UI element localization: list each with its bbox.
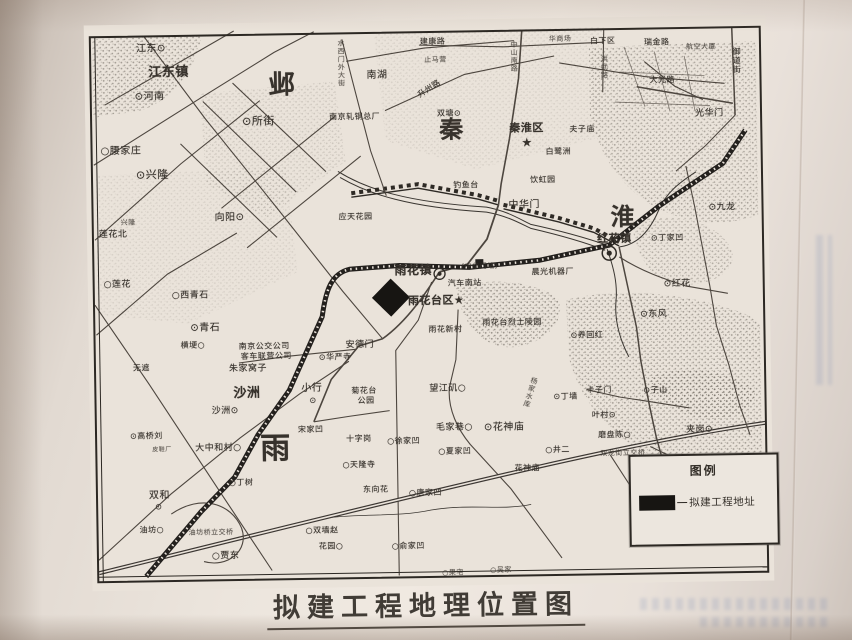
map-label: ○贾东 <box>212 552 239 561</box>
map-label: 瑞金路 <box>644 38 670 46</box>
map-label: ○吴家 <box>490 567 512 574</box>
map-label: 航空大厦 <box>686 43 716 50</box>
map-label: ○井二 <box>545 446 570 454</box>
map-label: ○天隆寺 <box>342 461 375 470</box>
map-label: ○果宅 <box>442 569 464 576</box>
map-label: 大中和村○ <box>195 444 241 454</box>
map-label: 沙洲 <box>233 387 260 400</box>
map-label: 磨盘陈○ <box>598 431 631 440</box>
map-label: 雨花台区★ <box>408 294 465 306</box>
paper-edge <box>789 0 805 640</box>
map-label: 雨花镇 <box>394 264 432 277</box>
legend-dash <box>677 502 687 504</box>
legend-item: 拟建工程地址 <box>639 494 769 511</box>
map-label: 兴隆 <box>121 220 136 227</box>
map-label: ⊙九龙 <box>708 203 735 212</box>
map-label: ○丁树 <box>229 479 254 487</box>
map-label: 大光路 <box>649 76 675 84</box>
map-label: 汽车南站 <box>448 279 482 288</box>
map-label: ○双墙赵 <box>306 526 339 535</box>
map-label: ⊙丁家凹 <box>651 234 684 243</box>
map-label: 望江矶○ <box>429 384 466 394</box>
map-label: 升州路 <box>417 79 443 100</box>
map-caption: 拟建工程地理位置图 <box>0 584 852 628</box>
map-label: 晨光机器厂 <box>531 268 574 277</box>
map-label: 钓鱼台 <box>453 181 479 189</box>
map-label: 水西门外大街 <box>337 39 345 87</box>
map-label: ⊙东风 <box>640 310 667 319</box>
map-label: 饮虹园 <box>530 176 556 184</box>
page-title: 拟建工程地理位置图 <box>267 582 586 630</box>
map-label: 双和 <box>149 491 170 501</box>
map-label: 秦 <box>439 117 464 141</box>
map-label: ⊙高桥刘 <box>130 432 163 441</box>
map-label: 夫子庙 <box>569 125 595 133</box>
map-label: 白下区 <box>590 37 616 45</box>
map-label: 客车联营公司 <box>241 352 292 361</box>
map-label: 雨花新村 <box>428 325 462 334</box>
map-label: 雨花台烈士陵园 <box>482 318 542 327</box>
map-label: ⊙花神庙 <box>484 423 525 434</box>
map-label: 叶村⊙ <box>592 411 616 419</box>
map-label: 油坊桥立交桥 <box>189 529 234 537</box>
map-label: 止马营 <box>424 57 447 64</box>
map-label: ○腰家庄 <box>101 147 142 158</box>
map-label: 御道街 <box>732 47 740 74</box>
map-label: 公园 <box>357 397 374 405</box>
map-label: 小行 <box>301 384 322 394</box>
map-label: 光华门 <box>695 109 724 118</box>
map-label: ○俞家凹 <box>392 542 425 551</box>
photographed-map-document: { "photo": {"background": "#ece5dd", "sh… <box>0 0 852 640</box>
map-label: 油坊○ <box>139 526 164 534</box>
legend-title: 图例 <box>631 461 777 480</box>
map-label: ⊙兴隆 <box>136 169 169 181</box>
map-label: 皮鞋厂 <box>152 447 172 453</box>
map-label: 南京轧钢总厂 <box>329 113 380 122</box>
map-label: 莲花北 <box>99 231 128 240</box>
map-label: 东向花 <box>363 486 389 494</box>
legend-box: 图例 拟建工程地址 <box>628 453 779 547</box>
map-label: ⊙红花 <box>664 280 691 289</box>
map-label: 中华门 <box>508 200 540 210</box>
map-label: ★ <box>521 136 532 148</box>
map-label: 十字岗 <box>346 435 372 443</box>
map-label: 白鹭洲 <box>546 148 572 156</box>
map-label: (中华门站) <box>461 263 498 271</box>
map-label: 杨家水库 <box>522 376 538 409</box>
map-label: ○夏家凹 <box>438 447 471 456</box>
map-label: 向阳⊙ <box>215 213 245 223</box>
map-label: 安德门 <box>346 341 375 350</box>
map-label: 横埂○ <box>181 342 206 350</box>
map-label: 华商场 <box>549 36 572 43</box>
map-label: 秦淮区 <box>509 122 544 134</box>
map-sheet: 江东⊙江东镇⊙河南⊙所街○腰家庄⊙兴隆邺南湖水西门外大街南京轧钢总厂止马营建康路… <box>84 15 775 592</box>
map-label: ⊙ <box>155 503 162 511</box>
ink-bleed <box>816 235 832 385</box>
map-label: 雨 <box>260 434 291 464</box>
map-label: ⊙河南 <box>135 92 165 102</box>
legend-item-label: 拟建工程地址 <box>689 494 755 510</box>
map-label: 宋家凹 <box>298 426 324 434</box>
map-label: 应天花园 <box>339 213 373 222</box>
map-label: 江东⊙ <box>136 44 166 54</box>
map-label: 菊花台 <box>351 387 377 395</box>
map-label: 花神庙 <box>515 464 541 472</box>
map-label: ○徐家凹 <box>387 437 420 446</box>
map-label: 红花镇 <box>597 233 632 245</box>
map-label: ⊙所街 <box>242 115 275 127</box>
map-label: 南京公交公司 <box>239 342 290 351</box>
map-label: 卡子门 <box>586 386 612 394</box>
map-label: 毛家巷○ <box>436 423 473 433</box>
map-label: 淮 <box>610 205 635 229</box>
map-label: ○西青石 <box>172 291 209 301</box>
map-label: 中山南路 <box>510 41 518 73</box>
map-label: 朱家窝子 <box>229 365 267 375</box>
map-label: ○莲花 <box>104 281 131 290</box>
map-label: ⊙华严寺 <box>319 353 352 362</box>
map-label: ⊙青石 <box>190 323 220 333</box>
map-label: 江东镇 <box>148 66 189 80</box>
map-label: ⊙ <box>309 397 316 405</box>
map-label: ⊙子山 <box>643 386 667 394</box>
map-label: 花园○ <box>319 542 344 550</box>
map-label: ⊙养回红 <box>570 331 603 340</box>
map-label: 沙洲⊙ <box>212 407 239 416</box>
map-label: ⊙丁墙 <box>553 393 577 401</box>
map-label: 邺 <box>268 72 295 98</box>
map-label: 夹岗⊙ <box>686 426 713 435</box>
map-label: 洪武路 <box>600 55 607 79</box>
map-label: ○唐家凹 <box>409 489 442 498</box>
map-label: 建康路 <box>420 38 446 46</box>
map-label: 无遮 <box>133 364 150 372</box>
map-label: 南湖 <box>366 71 387 81</box>
legend-swatch-project-site <box>639 495 675 511</box>
